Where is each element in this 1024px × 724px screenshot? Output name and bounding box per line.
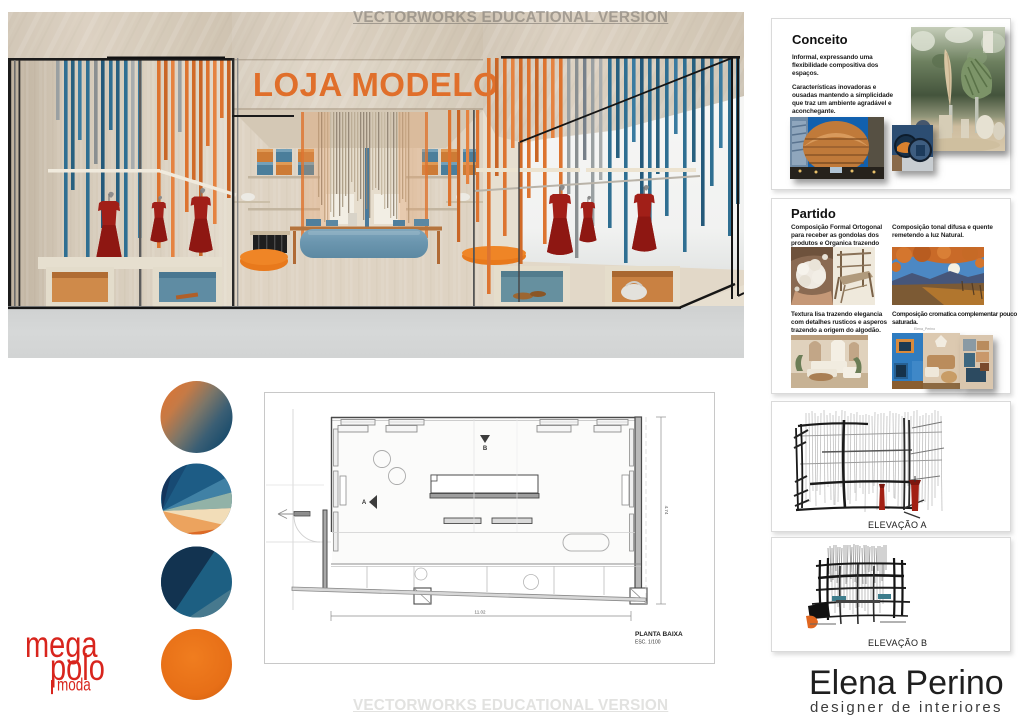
svg-text:PLANTA BAIXA: PLANTA BAIXA xyxy=(635,631,683,638)
svg-text:11.02: 11.02 xyxy=(475,610,486,615)
svg-text:LOJA MODELO: LOJA MODELO xyxy=(253,66,499,103)
svg-text:B: B xyxy=(483,446,488,452)
svg-text:4.74: 4.74 xyxy=(664,506,669,515)
svg-text:A: A xyxy=(362,500,367,506)
svg-text:ESC. 1/100: ESC. 1/100 xyxy=(635,640,661,646)
